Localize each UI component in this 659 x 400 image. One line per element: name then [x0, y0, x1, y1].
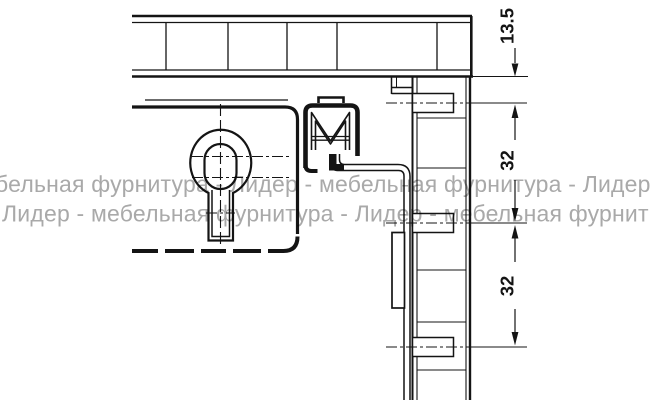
watermark-line-1: бельная фурнитура - Лидер - мебельная фу… [0, 171, 651, 197]
clip-foot [329, 154, 344, 171]
watermark-line-2: Лидер - мебельная фурнитура - Лидер - ме… [2, 201, 649, 227]
watermark: бельная фурнитура - Лидер - мебельная фу… [0, 171, 651, 227]
dimension-32-lower-label: 32 [497, 276, 518, 297]
dimension-13-5-label: 13.5 [497, 8, 518, 44]
back-panel-detail [392, 77, 413, 94]
bracket-plate [392, 233, 405, 309]
dimension-32-upper-label: 32 [497, 150, 518, 171]
dimension-13-5: 13.5 [497, 8, 519, 77]
mounting-bracket [306, 98, 411, 400]
drawing-canvas: 13.5 32 32 бельная фурнитура - Лидер - м… [0, 0, 659, 400]
top-panel [132, 16, 473, 77]
dimension-32-lower: 32 [497, 225, 519, 346]
technical-drawing-page: 13.5 32 32 бельная фурнитура - Лидер - м… [0, 0, 659, 400]
